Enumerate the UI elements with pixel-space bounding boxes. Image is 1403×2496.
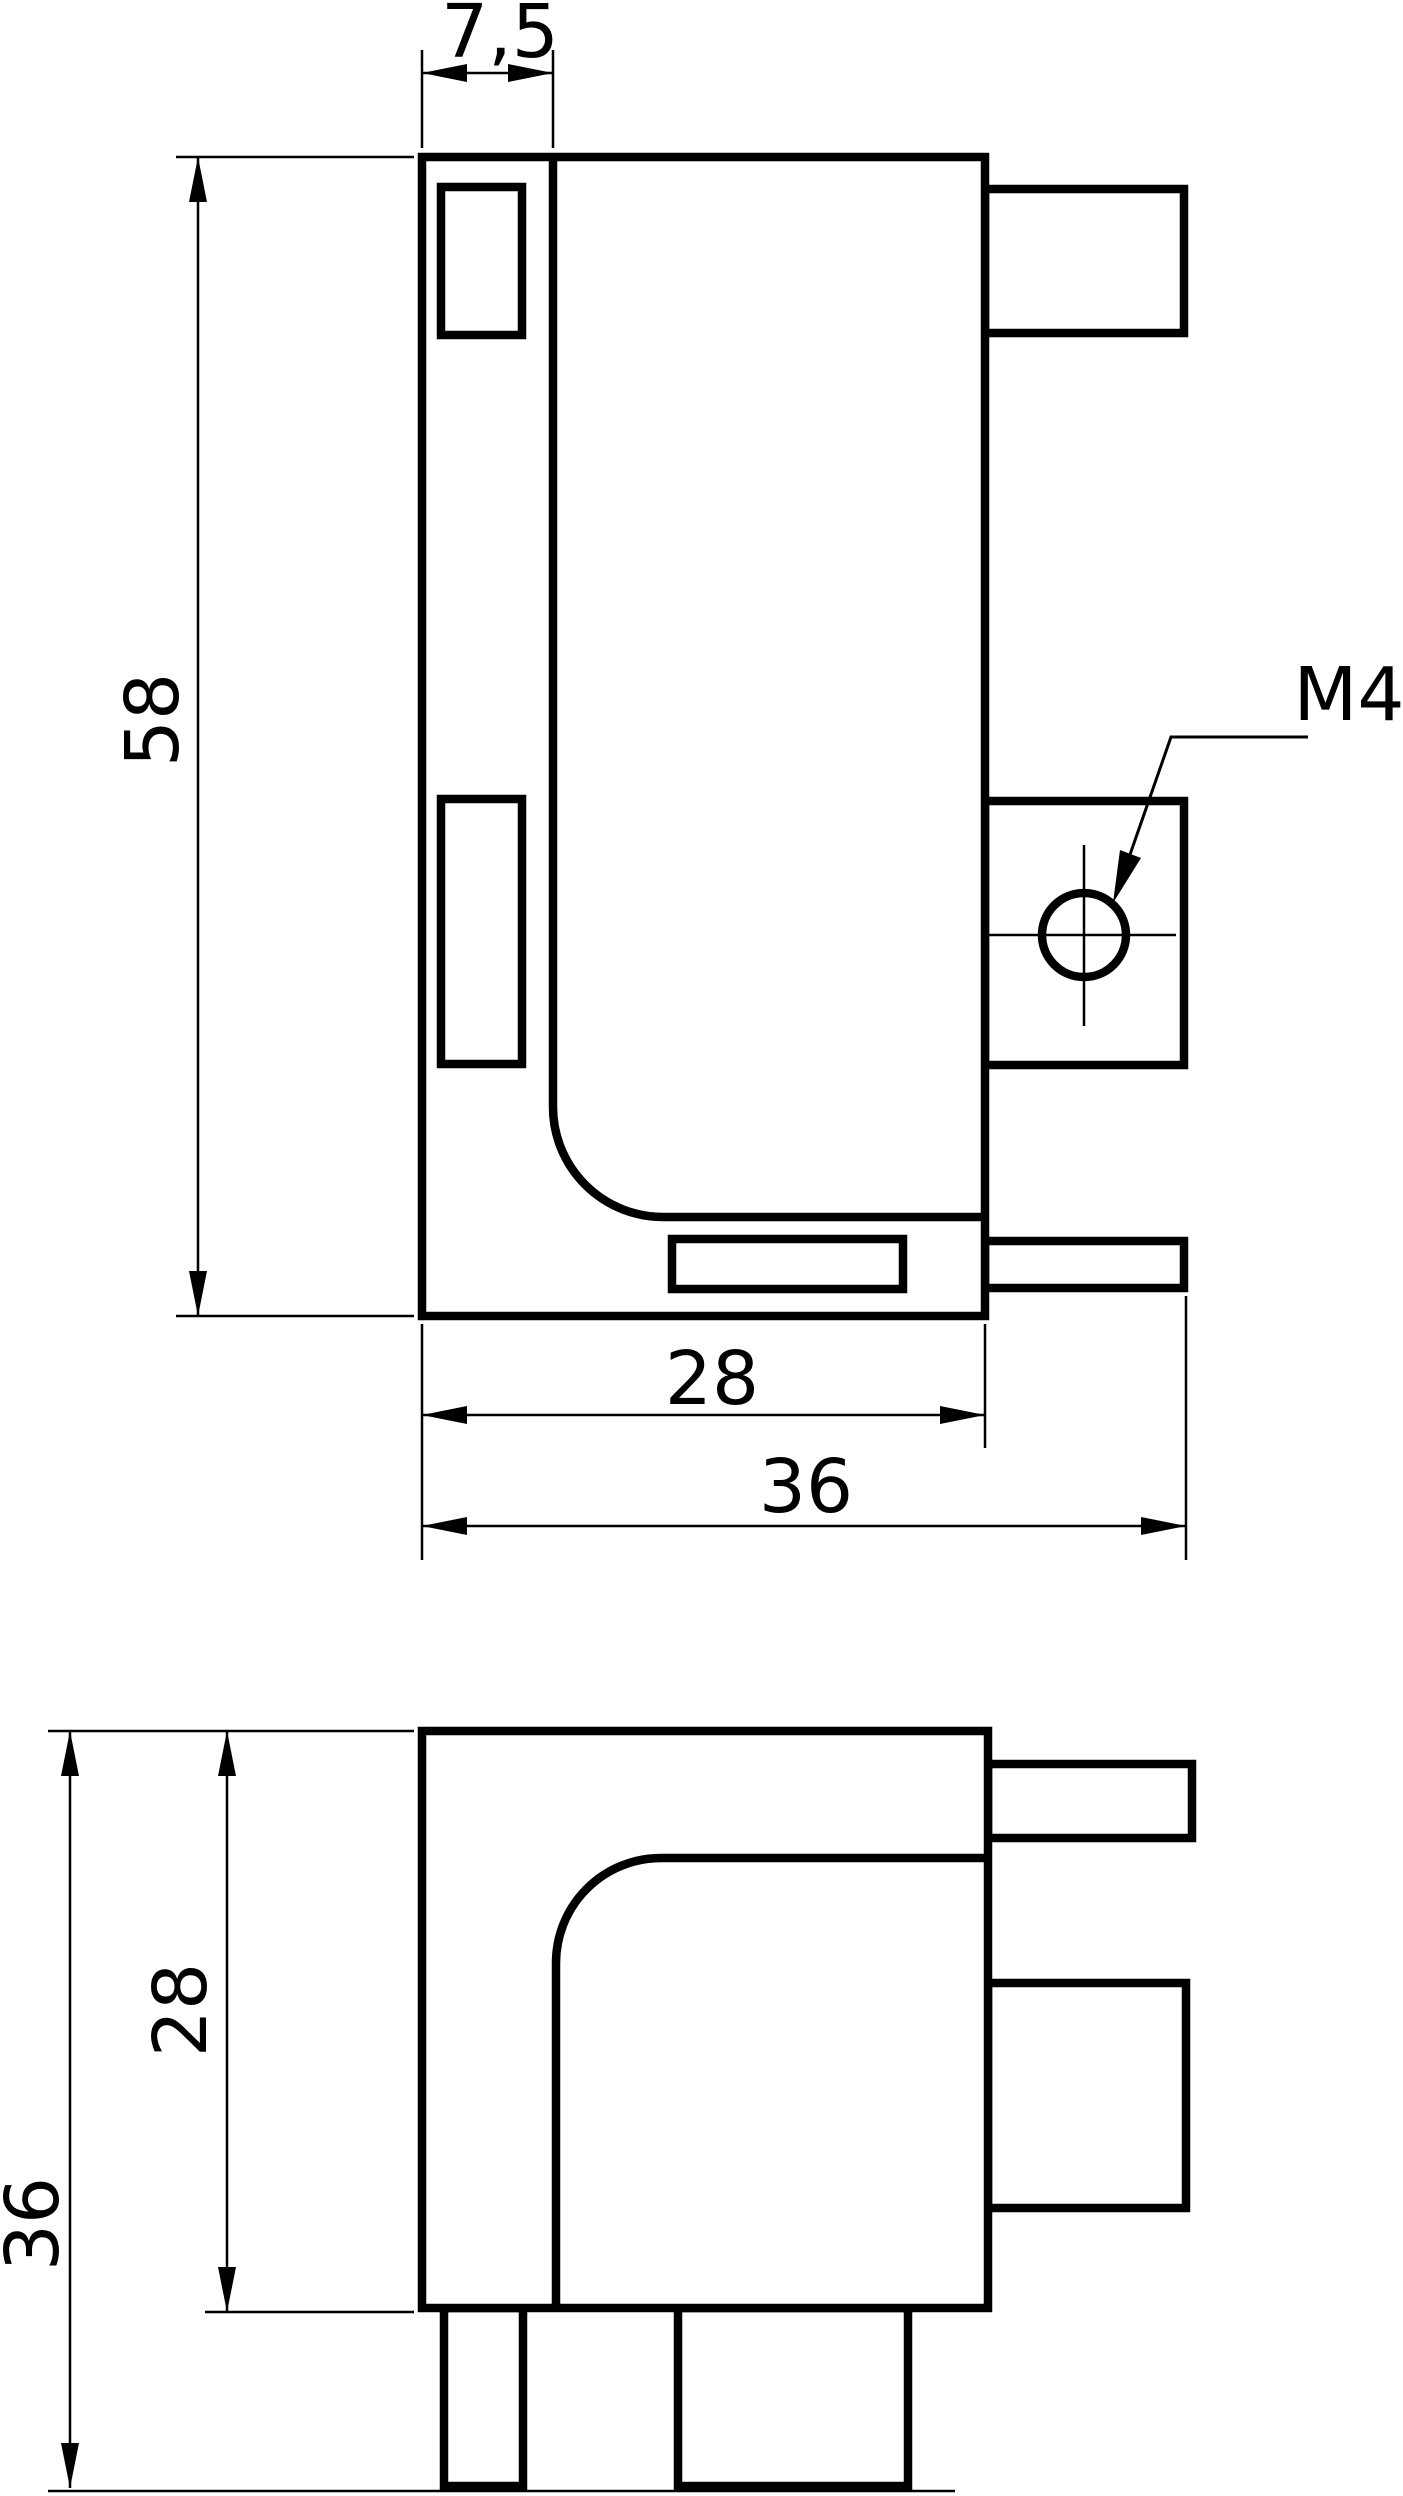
arrowhead-left: [422, 1517, 467, 1535]
side-view: 28 36: [0, 1731, 1192, 2491]
arrowhead-left: [422, 1406, 467, 1424]
arrowhead-down: [218, 2267, 236, 2312]
technical-drawing-canvas: M4 58 7,5 28: [0, 0, 1403, 2496]
arrowhead-down: [61, 2443, 79, 2488]
front-top-right-tab: [985, 189, 1184, 333]
front-dim-body-width-label: 28: [665, 1336, 759, 1422]
front-slot-mid-left: [441, 799, 522, 1064]
front-dim-height: 58: [110, 157, 414, 1316]
front-dim-body-width: 28: [422, 1324, 985, 1560]
arrowhead-right: [940, 1406, 985, 1424]
side-dim-body-height: 28: [48, 1731, 414, 2312]
front-dim-slot-width-label: 7,5: [441, 0, 559, 75]
arrowhead-down: [189, 1271, 207, 1316]
arrowhead-up: [189, 157, 207, 202]
side-body-outline: [422, 1731, 988, 2308]
arrowhead-up: [218, 1731, 236, 1776]
m4-thread-label: M4: [1294, 652, 1403, 738]
front-slot-bottom: [672, 1239, 903, 1289]
front-dim-total-width: 36: [422, 1296, 1186, 1560]
side-dim-total-height-label: 36: [0, 2177, 76, 2271]
side-right-leg: [678, 2308, 908, 2486]
side-dim-body-height-label: 28: [138, 1963, 224, 2057]
front-dim-slot-width: 7,5: [422, 0, 559, 148]
arrowhead-up: [61, 1731, 79, 1776]
side-left-leg: [444, 2308, 523, 2486]
arrowhead-right: [1141, 1517, 1186, 1535]
front-dim-total-width-label: 36: [759, 1444, 853, 1530]
front-slot-top-left: [441, 187, 522, 335]
front-dim-height-label: 58: [110, 673, 196, 767]
front-bottom-right-tab: [985, 1241, 1184, 1288]
side-right-block: [988, 1983, 1186, 2208]
side-top-right-tab: [988, 1764, 1192, 1838]
front-view: M4 58 7,5 28: [110, 0, 1403, 1560]
